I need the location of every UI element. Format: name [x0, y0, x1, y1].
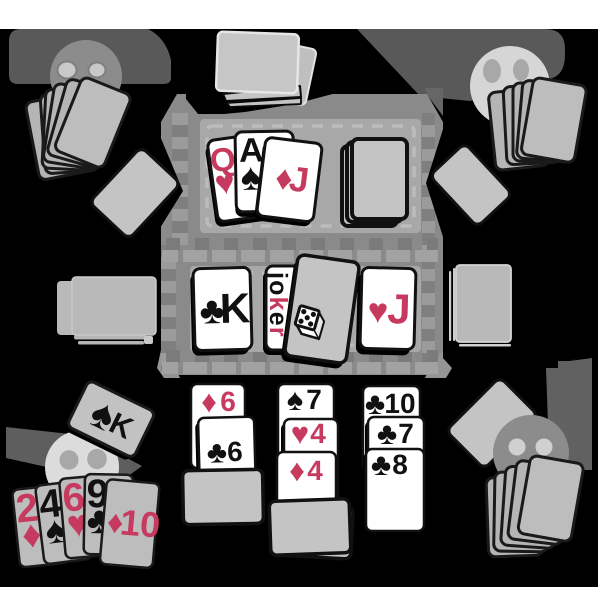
svg-text:10: 10 [119, 501, 162, 545]
svg-text:7: 7 [398, 418, 414, 449]
svg-text:♣: ♣ [377, 416, 397, 451]
svg-text:10: 10 [384, 388, 415, 419]
svg-text:4: 4 [310, 418, 326, 449]
svg-text:7: 7 [306, 384, 322, 415]
svg-text:♣: ♣ [206, 434, 227, 470]
svg-text:♦: ♦ [289, 453, 305, 488]
svg-text:♣: ♣ [371, 447, 391, 482]
svg-text:J: J [387, 285, 412, 333]
svg-text:♠: ♠ [287, 382, 303, 417]
svg-text:♥: ♥ [291, 416, 309, 451]
svg-text:8: 8 [392, 449, 408, 480]
svg-text:4: 4 [307, 455, 323, 486]
svg-text:6: 6 [220, 386, 236, 417]
svg-text:6: 6 [227, 436, 243, 467]
svg-text:♥: ♥ [367, 291, 389, 331]
svg-text:K: K [219, 284, 251, 332]
svg-text:♦: ♦ [201, 384, 217, 419]
